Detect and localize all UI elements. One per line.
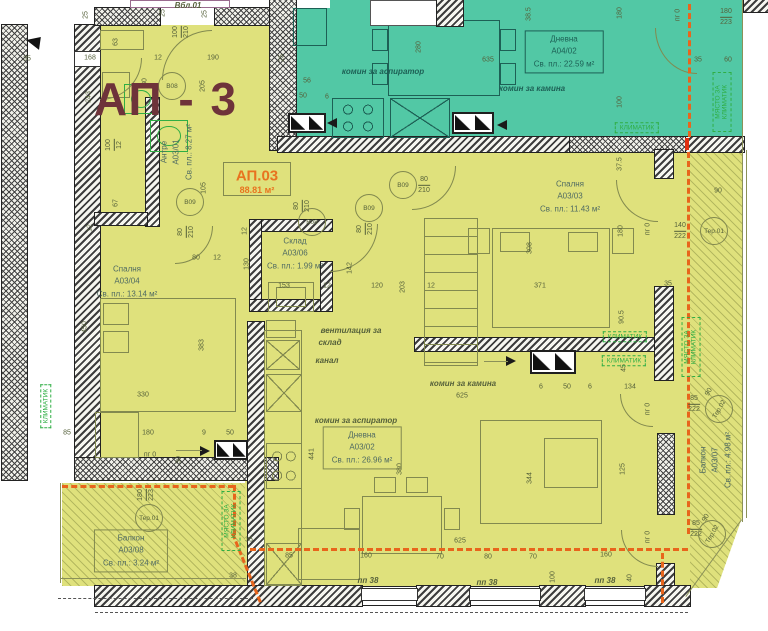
room-label: Балкон А03/07 Св. пл.: 4.98 м² [697, 432, 734, 488]
plan-shape [530, 350, 576, 374]
dimension-label: 12 [323, 283, 331, 290]
dimension-label: 85 [63, 430, 71, 437]
dimension-label: 383 [199, 339, 206, 351]
dimension-label: 80 [484, 554, 492, 561]
plan-shape [452, 112, 494, 134]
plan-shape [390, 98, 450, 138]
fraction-top: 180 [720, 8, 732, 16]
dimension-label: 35 [245, 537, 253, 544]
plan-shape [288, 113, 326, 133]
room-name: Спалня [540, 178, 600, 190]
dimension-label: пг 0 [675, 9, 682, 21]
fraction-bottom: 210 [367, 223, 375, 235]
fraction-top: 180 [137, 489, 145, 501]
dimension-label: 160 [600, 552, 612, 559]
dimension-label: 105 [201, 182, 208, 194]
dimension-label: 243 [86, 91, 93, 103]
plan-shape [661, 553, 664, 603]
dimension-label: 125 [620, 463, 627, 475]
room-area: Св. пл.: 8.27 м² [183, 124, 195, 180]
plan-shape [655, 287, 673, 380]
fraction-bottom: 210 [418, 187, 430, 195]
size-fraction: 80 210 [356, 223, 374, 235]
hvac-label: КЛИМАТИК [602, 355, 646, 366]
plan-shape [60, 578, 246, 579]
size-fraction: 180 223 [137, 489, 155, 501]
room-area: Св. пл.: 13.14 м² [97, 288, 158, 300]
room-name: Спалня [97, 263, 158, 275]
dimension-label: 80 [192, 255, 200, 262]
annotation: пп 38 [595, 577, 616, 585]
room-code: А03/04 [97, 276, 158, 288]
annotation: комин за аспиратор [342, 68, 424, 76]
dimension-label: 441 [309, 448, 316, 460]
plan-shape [444, 508, 460, 530]
dimension-label: 120 [371, 283, 383, 290]
hvac-label: МЯСТО ЗА КЛИМАТИК [713, 72, 732, 132]
plan-shape [176, 450, 202, 451]
plan-shape [62, 485, 234, 488]
dimension-label: 100 [617, 96, 624, 108]
plan-shape [214, 440, 248, 460]
annotation: вентилация за [321, 327, 382, 335]
plan-shape [344, 508, 360, 530]
dimension-label: 30 [176, 456, 183, 464]
fraction-line [181, 26, 182, 38]
room-area: Св. пл.: 3.24 м² [103, 557, 159, 569]
dimension-label: 12 [213, 255, 221, 262]
dimension-label: пг 0 [645, 403, 652, 415]
door-label: В09 [355, 194, 383, 222]
plan-shape [437, 0, 463, 26]
room-label: Склад А03/06 Св. пл.: 1.99 м² [267, 235, 323, 272]
dimension-label: 40 [627, 574, 634, 582]
dimension-label: 142 [347, 262, 354, 274]
plan-shape [103, 303, 129, 325]
fraction-bottom: 210 [183, 26, 191, 38]
plan-shape [322, 118, 337, 128]
dimension-label: 371 [534, 283, 546, 290]
room-label: Антре А03/01 Св. пл.: 8.27 м² [158, 124, 195, 180]
room-label: Дневна А04/02 Св. пл.: 22.59 м² [525, 30, 604, 73]
plan-shape [645, 586, 690, 606]
plan-shape [688, 4, 691, 137]
fraction-top: 80 [177, 228, 185, 236]
size-fraction: 80 210 [418, 176, 430, 194]
dimension-label: 37.5 [617, 157, 624, 171]
plan-shape [362, 589, 417, 600]
dimension-label: 12 [154, 55, 162, 62]
dimension-label: 50 [226, 430, 234, 437]
room-name: Балкон [697, 432, 709, 488]
apartment-area: 88.81 м² [240, 185, 275, 195]
plan-shape [95, 8, 160, 25]
fraction-top: 140 [674, 222, 686, 230]
room-name: Антре [158, 124, 170, 180]
plan-shape [470, 589, 540, 600]
plan-shape [655, 150, 673, 178]
plan-shape [742, 150, 743, 522]
fraction-top: 100 [172, 26, 180, 38]
door-label: В08 [298, 208, 326, 236]
room-area: Св. пл.: 11.43 м² [540, 203, 600, 215]
annotation: комин за камина [499, 85, 565, 93]
plan-shape [417, 586, 470, 606]
dimension-label: 12 [87, 224, 94, 232]
dimension-label: 56 [303, 78, 311, 85]
dimension-label: 330 [137, 392, 149, 399]
fraction-top: 80 [420, 176, 428, 184]
dimension-label: 38 [229, 573, 237, 580]
room-code: А03/06 [267, 248, 323, 260]
room-name: Балкон [103, 532, 159, 544]
plan-shape [95, 586, 362, 606]
plan-shape [95, 612, 688, 613]
dimension-label: 180 [142, 430, 154, 437]
door-label: В09 [389, 171, 417, 199]
door-label: Тер.01 [700, 217, 728, 245]
dimension-label: 9 [202, 430, 206, 437]
door-label: Тер.01 [135, 504, 163, 532]
dimension-label: 450 [82, 321, 89, 333]
room-label: Спалня А03/04 Св. пл.: 13.14 м² [97, 263, 158, 300]
plan-shape [540, 586, 585, 606]
plan-shape [746, 150, 747, 518]
plan-shape [568, 232, 598, 252]
dimension-label: 308 [527, 242, 534, 254]
fraction-top: 100 [105, 139, 113, 151]
plan-shape [200, 446, 215, 456]
room-area: Св. пл.: 4.98 м² [722, 432, 734, 488]
hvac-label: МЯСТО ЗА КЛИМАТИК [682, 317, 701, 377]
plan-shape [657, 564, 674, 586]
dimension-label: 60 [724, 57, 732, 64]
door-label: В09 [176, 188, 204, 216]
fraction-top: 80 [293, 202, 301, 210]
plan-shape [370, 0, 440, 26]
dimension-label: 100 [550, 571, 557, 583]
plan-shape [742, 0, 743, 150]
plan-shape [250, 220, 261, 311]
room-code: А03/03 [540, 191, 600, 203]
fraction-bottom: 222 [688, 406, 700, 414]
dimension-label: 625 [456, 393, 468, 400]
fraction-line [418, 185, 430, 186]
plan-shape [686, 137, 744, 152]
plan-shape [685, 138, 689, 150]
room-area: Св. пл.: 26.96 м² [332, 454, 393, 466]
plan-shape [293, 8, 327, 46]
plan-shape [374, 477, 396, 493]
dimension-label: 130 [244, 258, 251, 270]
annotation: комин за камина [430, 380, 496, 388]
dimension-label: пг 0 [144, 452, 156, 459]
dimension-label: 67 [113, 199, 120, 207]
room-name: Дневна [332, 429, 393, 441]
plan-shape [500, 63, 516, 85]
annotation: пп 38 [477, 579, 498, 587]
room-area: Св. пл.: 1.99 м² [267, 260, 323, 272]
plan-shape [362, 496, 442, 554]
dimension-label: 90.5 [619, 310, 626, 324]
plan-shape [544, 438, 598, 488]
dimension-label: 160 [360, 553, 372, 560]
plan-shape [276, 287, 306, 307]
size-fraction: 80 210 [177, 226, 195, 238]
annotation: комин за аспиратор [315, 417, 397, 425]
plan-shape [103, 331, 129, 353]
dimension-label: 50 [299, 93, 307, 100]
fraction-line [674, 231, 686, 232]
dimension-label: 635 [482, 57, 494, 64]
dimension-label: 35 [664, 281, 672, 288]
hvac-label: КЛИМАТИК [40, 384, 51, 428]
plan-shape [58, 598, 253, 599]
dimension-label: 12 [242, 227, 249, 235]
plan-shape [506, 356, 521, 366]
mouse-cursor [25, 35, 41, 50]
dimension-label: 6 [539, 384, 543, 391]
dimension-label: 153 [278, 283, 290, 290]
dimension-label: 6 [588, 384, 592, 391]
room-label: Дневна А03/02 Св. пл.: 26.96 м² [323, 426, 402, 469]
room-area: Св. пл.: 22.59 м² [534, 58, 595, 70]
dimension-label: 35 [23, 56, 31, 63]
plan-shape [2, 25, 27, 480]
apartment-code: АП.03 [236, 168, 278, 185]
fraction-bottom: 12 [116, 141, 124, 149]
room-label: Спалня А03/03 Св. пл.: 11.43 м² [540, 178, 600, 215]
plan-shape [500, 29, 516, 51]
dimension-label: 6 [325, 94, 329, 101]
plan-shape [60, 483, 61, 583]
dimension-label: 25 [279, 54, 286, 62]
plan-shape [266, 320, 296, 338]
size-fraction: 140 222 [674, 222, 686, 240]
room-code: А04/02 [534, 46, 595, 58]
fraction-line [114, 139, 115, 151]
annotation: канал [316, 357, 339, 365]
plan-shape [215, 8, 278, 25]
plan-shape [95, 412, 139, 458]
dimension-label: 85 [285, 553, 293, 560]
fraction-line [688, 404, 700, 405]
plan-shape [250, 548, 688, 551]
dimension-label: 25 [202, 10, 209, 18]
plan-shape [744, 0, 768, 12]
plan-shape [484, 361, 508, 362]
hvac-label: КЛИМАТИК [615, 122, 659, 133]
dimension-label: 134 [624, 384, 636, 391]
plan-shape [278, 137, 570, 152]
dimension-label: 35 [694, 57, 702, 64]
dimension-label: 63 [113, 38, 120, 46]
dimension-label: 50 [563, 384, 571, 391]
fraction-bottom: 210 [188, 226, 196, 238]
dimension-label: 203 [400, 281, 407, 293]
dimension-label: пг 0 [645, 223, 652, 235]
size-fraction: 100 210 [172, 26, 190, 38]
room-code: А03/01 [171, 124, 183, 180]
hvac-label: КЛИМАТИК [603, 331, 647, 342]
plan-shape [492, 120, 507, 130]
plan-shape [372, 29, 388, 51]
annotation: Вбл.01 [175, 2, 202, 10]
dimension-label: 180 [617, 7, 624, 19]
floor-plan-canvas: 2525253516812190256324320580105671280125… [0, 0, 768, 631]
fraction-line [146, 489, 147, 501]
fraction-line [186, 226, 187, 238]
plan-shape [95, 213, 147, 225]
fraction-line [365, 223, 366, 235]
fraction-line [720, 17, 732, 18]
plan-shape [332, 98, 384, 138]
plan-shape [500, 232, 530, 252]
room-name: Склад [267, 235, 323, 247]
plan-shape [266, 340, 300, 370]
annotation: пп 38 [358, 577, 379, 585]
fraction-top: 80 [356, 225, 364, 233]
dimension-label: 90 [714, 188, 722, 195]
plan-shape [658, 434, 674, 514]
hvac-label: МЯСТО ЗА КЛИМАТИК [222, 491, 241, 551]
size-fraction: 85 222 [688, 395, 700, 413]
room-name: Дневна [534, 33, 595, 45]
plan-shape [266, 443, 302, 489]
room-label: Балкон А03/08 Св. пл.: 3.24 м² [94, 529, 168, 572]
dimension-label: 25 [160, 9, 167, 17]
size-fraction: 180 223 [720, 8, 732, 26]
plan-shape [585, 589, 645, 600]
dimension-label: 70 [436, 554, 444, 561]
plan-shape [266, 374, 302, 412]
dimension-label: 38.5 [526, 7, 533, 21]
fraction-top: 85 [690, 395, 698, 403]
plan-shape [298, 528, 360, 580]
size-fraction: 100 12 [105, 139, 123, 151]
annotation: склад [318, 339, 341, 347]
dimension-label: 180 [618, 225, 625, 237]
dimension-label: 168 [84, 55, 96, 62]
room-code: А03/07 [710, 432, 722, 488]
plan-shape [100, 30, 144, 50]
plan-shape [468, 228, 490, 254]
dimension-label: 625 [454, 538, 466, 545]
fraction-bottom: 223 [148, 489, 156, 501]
dimension-label: 344 [527, 472, 534, 484]
dimension-label: 25 [83, 11, 90, 19]
dimension-label: 12 [427, 283, 435, 290]
apartment-title: АП - 3 [94, 72, 238, 126]
room-code: А03/08 [103, 545, 159, 557]
fraction-bottom: 223 [720, 19, 732, 27]
room-code: А03/02 [332, 442, 393, 454]
dimension-label: 70 [529, 554, 537, 561]
dimension-label: 190 [207, 55, 219, 62]
dimension-label: пг 0 [645, 531, 652, 543]
plan-shape [406, 477, 428, 493]
fraction-bottom: 222 [674, 233, 686, 241]
dimension-label: 280 [416, 41, 423, 53]
